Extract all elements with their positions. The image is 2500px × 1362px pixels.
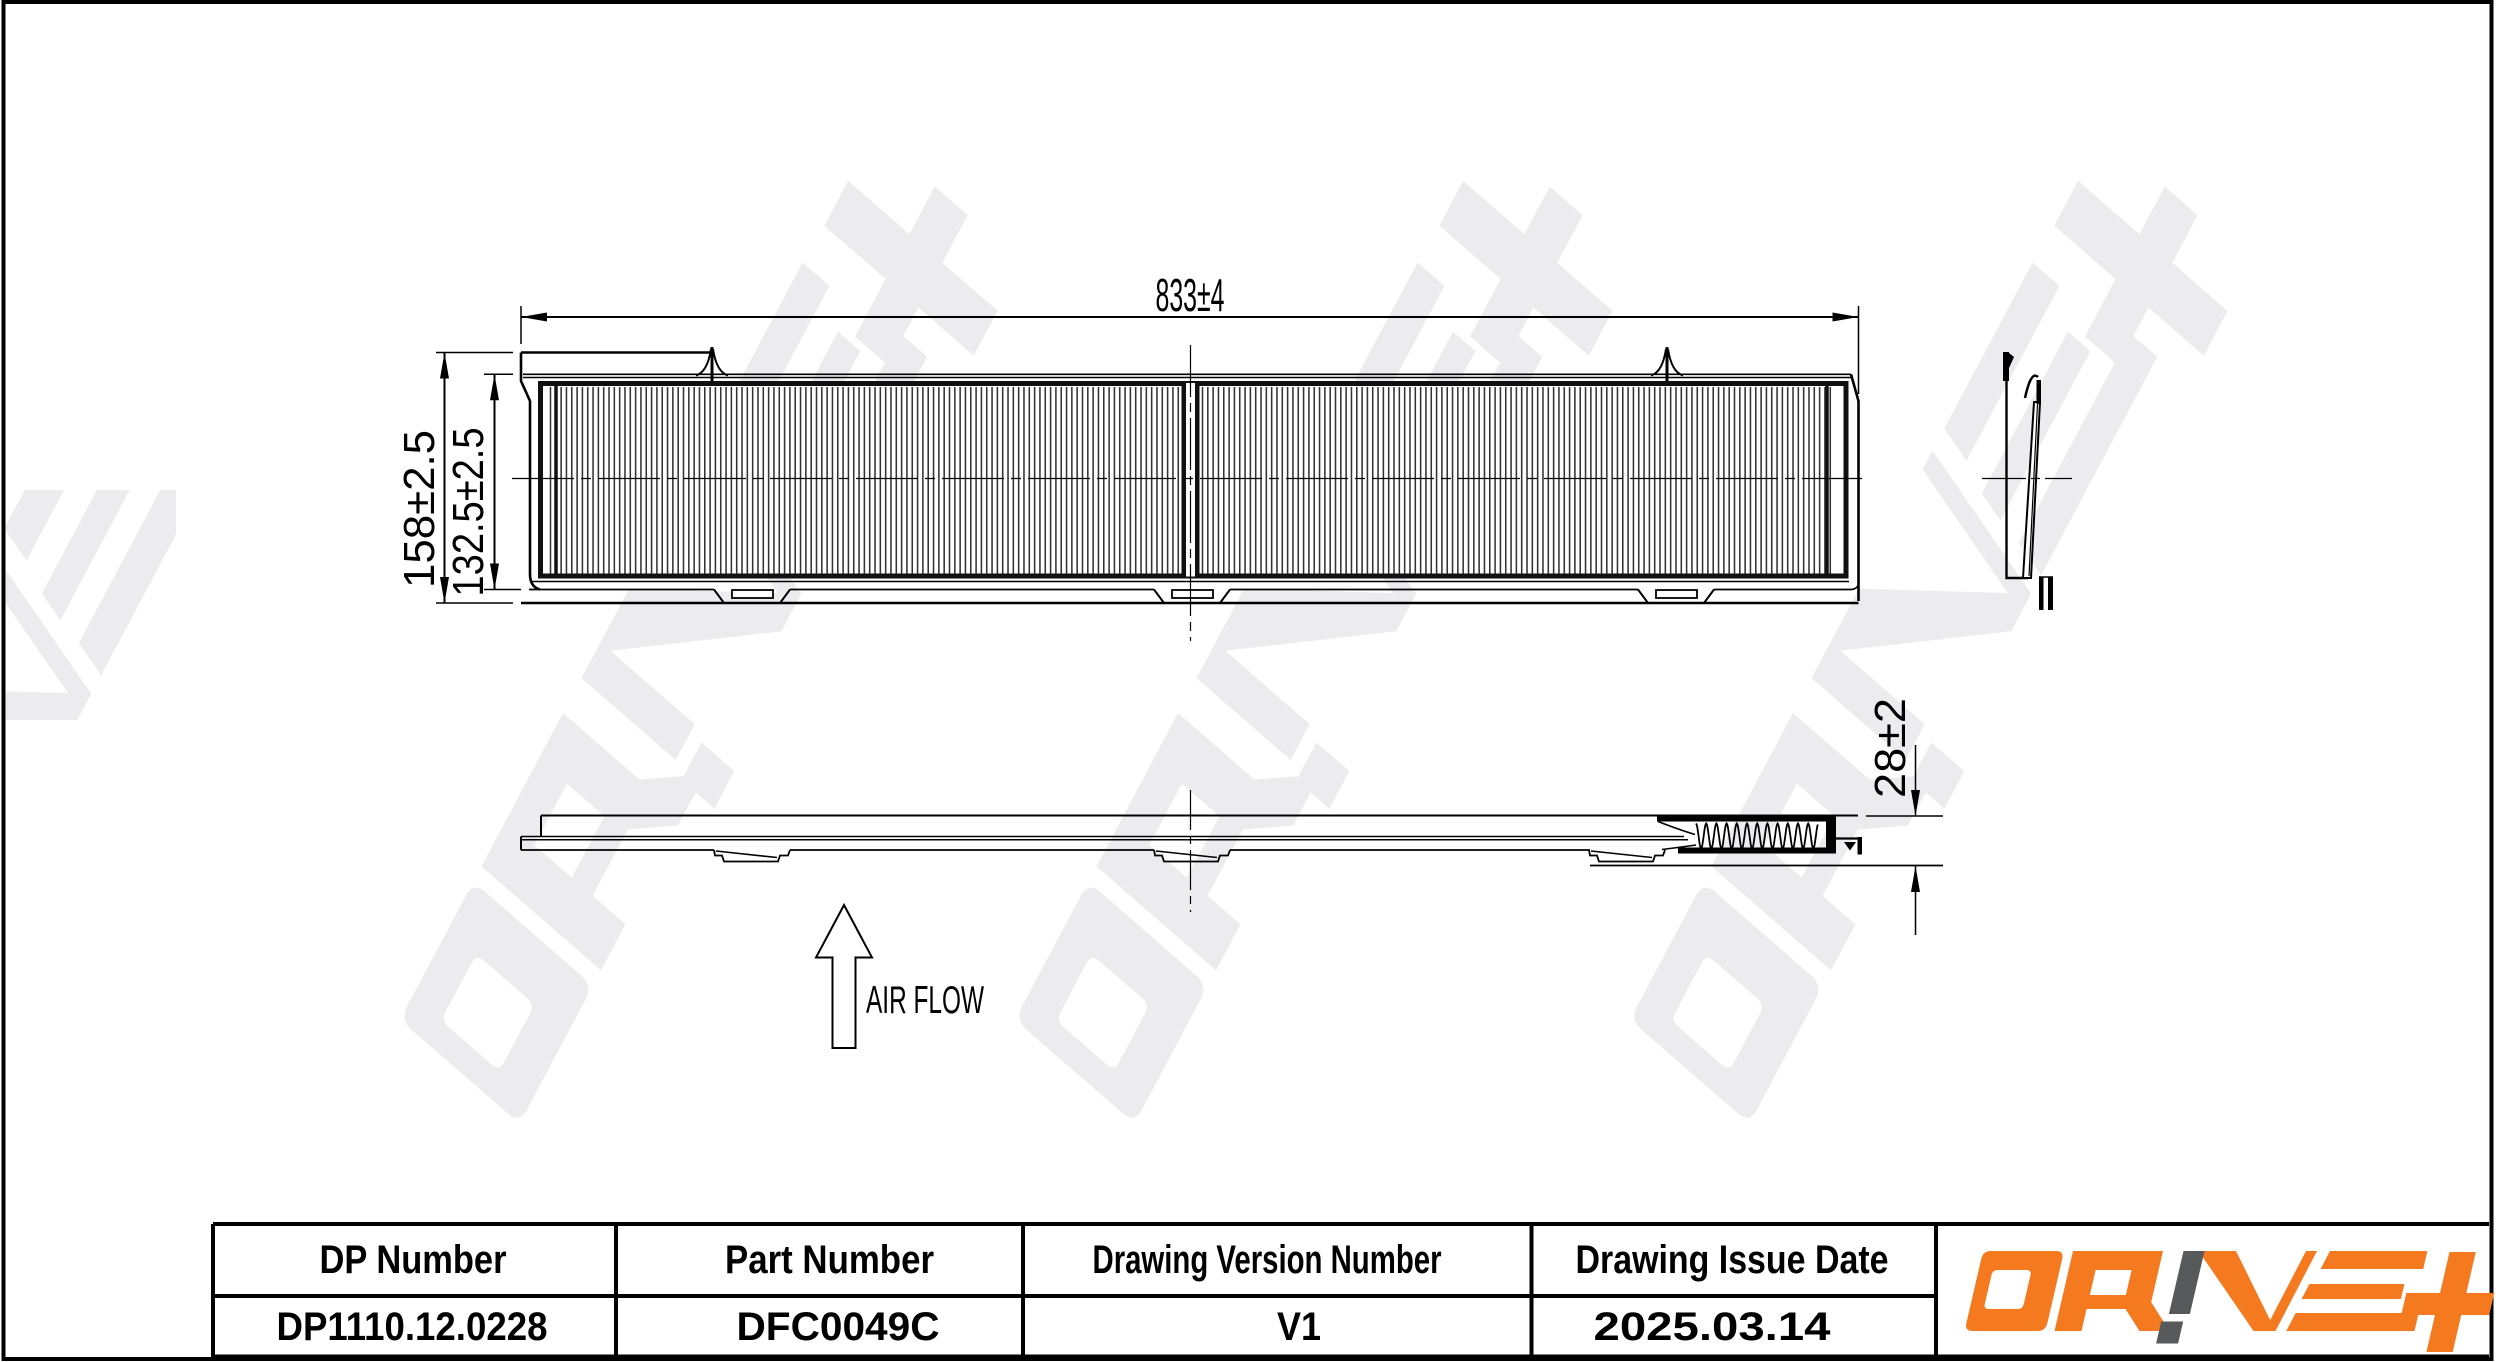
svg-text:DP1110.12.0228: DP1110.12.0228 [277,1305,548,1349]
svg-text:Part Number: Part Number [725,1238,934,1282]
svg-text:DP Number: DP Number [320,1238,507,1282]
svg-text:2025.03.14: 2025.03.14 [1594,1305,1832,1349]
svg-text:28±2: 28±2 [1866,698,1915,798]
svg-text:Drawing Version Number: Drawing Version Number [1093,1238,1442,1282]
svg-text:132.5±2.5: 132.5±2.5 [444,428,493,597]
svg-text:158±2.5: 158±2.5 [395,430,444,588]
svg-text:AIR FLOW: AIR FLOW [866,979,984,1022]
svg-text:DFC0049C: DFC0049C [737,1305,940,1349]
svg-text:833±4: 833±4 [1156,269,1225,321]
svg-text:Drawing Issue Date: Drawing Issue Date [1576,1238,1889,1282]
svg-text:V1: V1 [1277,1305,1321,1349]
